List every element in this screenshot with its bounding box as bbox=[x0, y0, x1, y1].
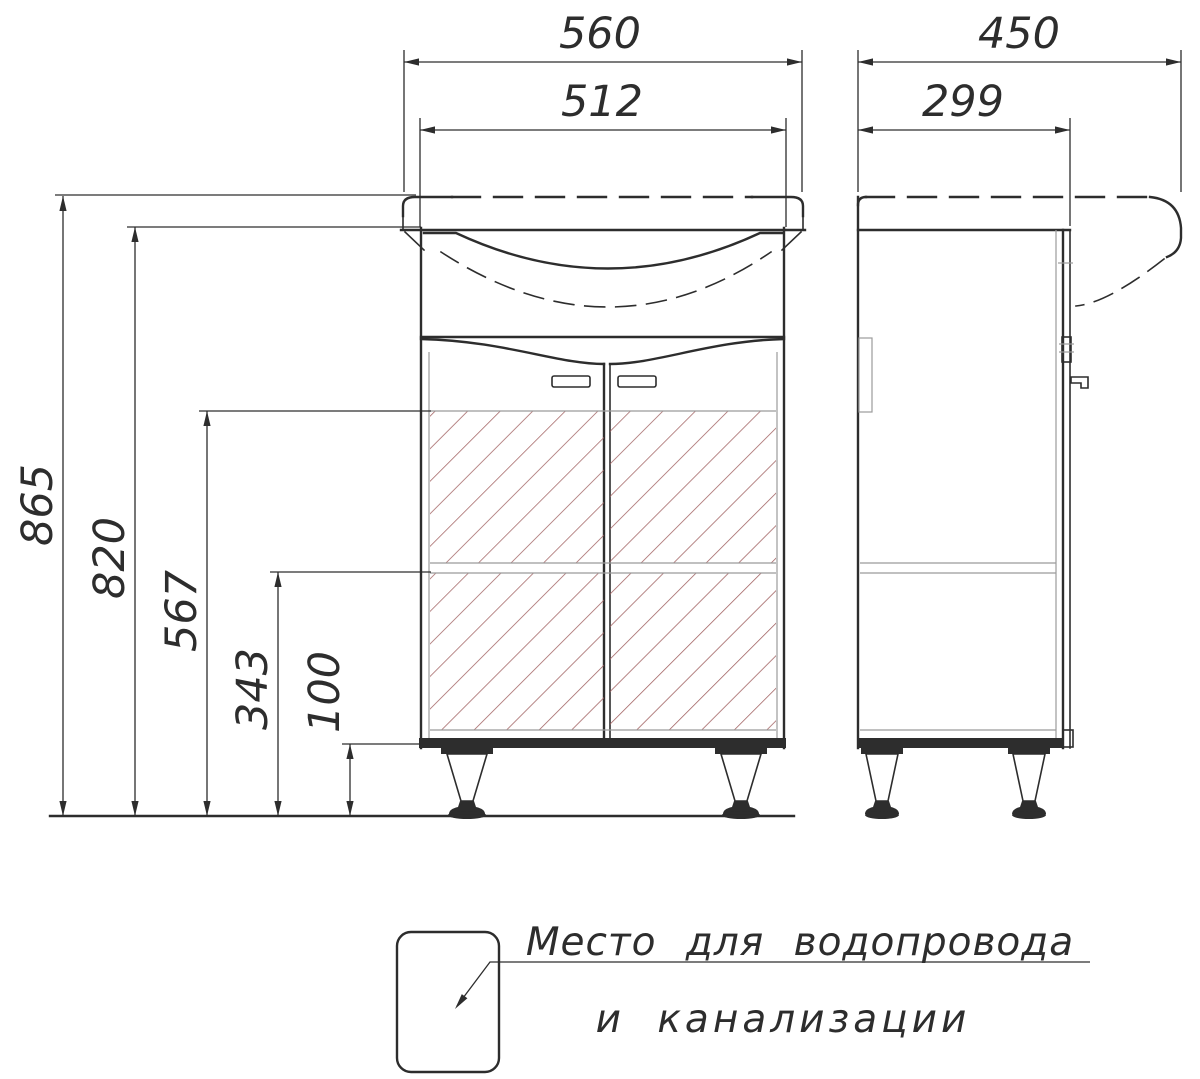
side-cabinet bbox=[858, 197, 1088, 748]
side-leg-cone-right bbox=[1013, 754, 1045, 801]
hatch-area-bottom-left bbox=[430, 573, 604, 730]
dim-label-567: 567 bbox=[157, 570, 207, 652]
side-leg-pad-left bbox=[865, 811, 899, 819]
sink-corner-left bbox=[403, 197, 452, 216]
front-legs bbox=[419, 738, 786, 819]
dim-plumbing-zone-height: 567 bbox=[157, 411, 431, 816]
side-leg-cone-left bbox=[866, 754, 898, 801]
legend-swatch bbox=[397, 932, 499, 1072]
side-bottom-band bbox=[858, 738, 1063, 748]
dim-label-512: 512 bbox=[561, 77, 643, 127]
door-handle-right bbox=[618, 376, 656, 387]
leg-cone-left bbox=[447, 754, 487, 801]
dim-label-343: 343 bbox=[228, 648, 278, 730]
side-bowl-hidden-curve bbox=[1076, 259, 1164, 306]
leg-mount-left bbox=[441, 748, 493, 754]
dim-label-100: 100 bbox=[300, 651, 350, 733]
hatch-area-bottom-right bbox=[610, 573, 776, 730]
dim-overall-depth: 450 bbox=[858, 9, 1181, 192]
apron-wave bbox=[421, 339, 784, 364]
side-fixing-tab bbox=[1071, 377, 1088, 388]
side-leg-mount-left bbox=[861, 748, 903, 754]
dim-label-820: 820 bbox=[85, 517, 135, 599]
side-legs bbox=[861, 748, 1050, 819]
side-back-step bbox=[1063, 730, 1073, 747]
side-view bbox=[858, 197, 1181, 819]
cabinet-bottom-band bbox=[419, 738, 786, 748]
dim-label-560: 560 bbox=[559, 9, 641, 59]
dim-label-865: 865 bbox=[13, 464, 63, 546]
dim-leg-height: 100 bbox=[300, 651, 421, 816]
hatch-area-top-left bbox=[430, 411, 604, 563]
hatch-area-top-right bbox=[610, 411, 776, 563]
side-leg-mount-right bbox=[1008, 748, 1050, 754]
side-door-edge-profile bbox=[859, 338, 872, 412]
side-leg-pad-right bbox=[1012, 811, 1046, 819]
vanity-dimension-drawing: 560 512 450 299 bbox=[0, 0, 1200, 1079]
legend-arrow-icon bbox=[455, 994, 467, 1009]
basin-bowl-hidden-curve bbox=[441, 252, 771, 307]
front-view bbox=[401, 197, 805, 819]
leg-mount-right bbox=[715, 748, 767, 754]
legend-text-line2: и канализации bbox=[596, 997, 971, 1042]
legend-text-line1: Место для водопровода bbox=[526, 920, 1074, 965]
front-sink bbox=[401, 197, 805, 307]
dim-cabinet-depth: 299 bbox=[858, 77, 1070, 226]
side-drain-bracket bbox=[1059, 337, 1074, 362]
drawing-canvas: 560 512 450 299 bbox=[0, 0, 1200, 1079]
dim-label-450: 450 bbox=[978, 9, 1060, 59]
leg-cone-right bbox=[721, 754, 761, 801]
side-sink bbox=[858, 197, 1181, 306]
dim-label-299: 299 bbox=[922, 77, 1004, 127]
basin-front-curve bbox=[424, 233, 782, 269]
dim-overall-height: 865 bbox=[13, 195, 416, 816]
sink-corner-right bbox=[752, 197, 803, 216]
side-sink-corner-right bbox=[1150, 197, 1181, 257]
door-handle-left bbox=[552, 376, 590, 387]
legend: Место для водопровода и канализации bbox=[397, 920, 1090, 1072]
dim-cabinet-width: 512 bbox=[420, 77, 786, 227]
